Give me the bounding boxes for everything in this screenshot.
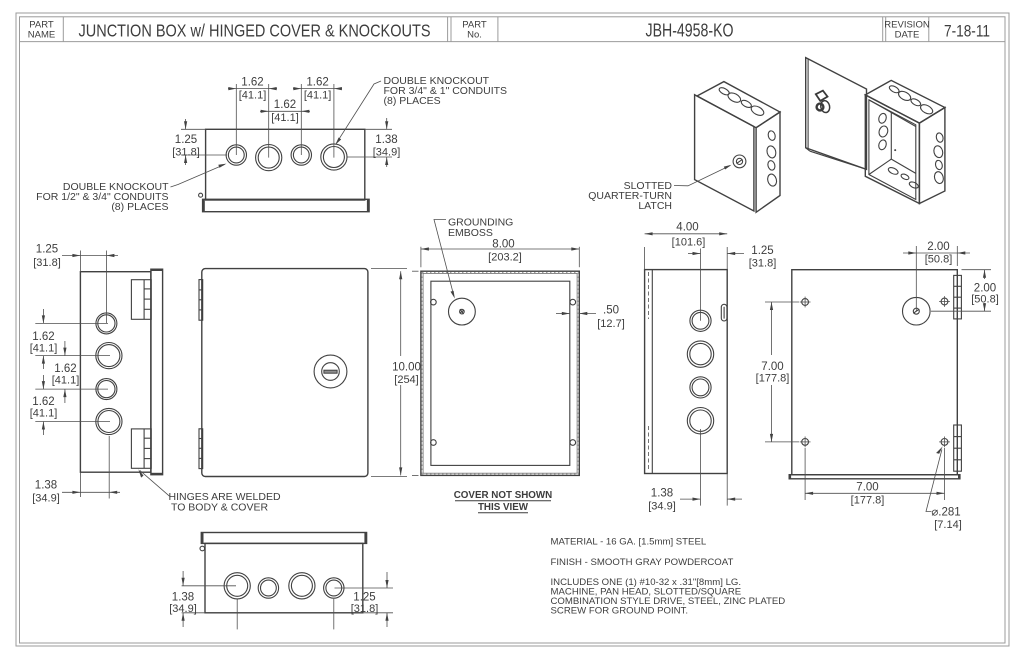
svg-text:1.38: 1.38 — [172, 591, 194, 603]
svg-text:No.: No. — [467, 29, 482, 40]
svg-text:7.00: 7.00 — [761, 361, 783, 373]
svg-text:[177.8]: [177.8] — [756, 372, 790, 384]
svg-text:FINISH - SMOOTH GRAY POWDERCOA: FINISH - SMOOTH GRAY POWDERCOAT — [551, 557, 734, 568]
svg-text:[50.8]: [50.8] — [925, 254, 953, 266]
svg-text:[31.8]: [31.8] — [749, 257, 777, 269]
svg-text:1.25: 1.25 — [36, 243, 58, 255]
svg-text:COVER NOT SHOWN: COVER NOT SHOWN — [454, 490, 553, 501]
svg-text:[34.9]: [34.9] — [373, 147, 401, 159]
svg-text:(8) PLACES: (8) PLACES — [111, 201, 168, 213]
svg-text:1.25: 1.25 — [751, 245, 773, 257]
svg-text:1.38: 1.38 — [35, 480, 57, 492]
svg-text:TO BODY & COVER: TO BODY & COVER — [171, 502, 268, 514]
svg-text:2.00: 2.00 — [927, 241, 949, 253]
svg-text:.50: .50 — [603, 305, 619, 317]
svg-text:JBH-4958-KO: JBH-4958-KO — [646, 21, 734, 41]
svg-text:[177.8]: [177.8] — [851, 495, 885, 507]
svg-text:[31.8]: [31.8] — [172, 146, 200, 158]
svg-text:MATERIAL - 16 GA. [1.5mm] STEE: MATERIAL - 16 GA. [1.5mm] STEEL — [551, 537, 707, 548]
svg-text:[34.9]: [34.9] — [169, 603, 197, 615]
svg-text:1.62: 1.62 — [306, 76, 328, 88]
svg-text:1.62: 1.62 — [241, 76, 263, 88]
svg-text:[50.8]: [50.8] — [971, 293, 999, 305]
svg-text:[254]: [254] — [394, 374, 418, 386]
svg-text:[41.1]: [41.1] — [271, 112, 299, 124]
svg-text:10.00: 10.00 — [392, 361, 421, 373]
svg-text:[101.6]: [101.6] — [672, 236, 706, 248]
svg-text:[203.2]: [203.2] — [488, 252, 522, 264]
svg-text:NAME: NAME — [28, 29, 55, 40]
svg-text:[34.9]: [34.9] — [32, 493, 60, 505]
svg-text:LATCH: LATCH — [638, 200, 672, 212]
svg-text:1.62: 1.62 — [54, 363, 76, 375]
svg-text:[31.8]: [31.8] — [33, 257, 61, 269]
svg-text:7-18-11: 7-18-11 — [944, 21, 990, 40]
svg-text:[7.14]: [7.14] — [934, 519, 962, 531]
svg-text:8.00: 8.00 — [492, 238, 514, 250]
svg-text:[41.1]: [41.1] — [52, 375, 80, 387]
svg-text:DATE: DATE — [895, 29, 920, 40]
svg-text:4.00: 4.00 — [676, 222, 698, 234]
svg-text:1.62: 1.62 — [32, 396, 54, 408]
svg-text:THIS VIEW: THIS VIEW — [478, 502, 529, 513]
svg-text:[41.1]: [41.1] — [304, 90, 332, 102]
svg-text:1.25: 1.25 — [175, 134, 197, 146]
svg-text:[41.1]: [41.1] — [30, 408, 58, 420]
svg-text:1.38: 1.38 — [651, 488, 673, 500]
svg-text:[31.8]: [31.8] — [351, 603, 379, 615]
svg-text:⌀.281: ⌀.281 — [931, 507, 960, 519]
svg-text:7.00: 7.00 — [856, 482, 878, 494]
svg-text:1.25: 1.25 — [353, 591, 375, 603]
svg-text:[41.1]: [41.1] — [239, 90, 267, 102]
svg-text:1.38: 1.38 — [375, 134, 397, 146]
svg-text:1.62: 1.62 — [274, 99, 296, 111]
svg-text:[12.7]: [12.7] — [597, 318, 625, 330]
svg-text:(8) PLACES: (8) PLACES — [384, 95, 441, 107]
svg-text:SCREW FOR GROUND POINT.: SCREW FOR GROUND POINT. — [551, 606, 689, 617]
svg-text:[41.1]: [41.1] — [30, 343, 58, 355]
svg-text:[34.9]: [34.9] — [648, 501, 676, 513]
svg-text:JUNCTION BOX w/ HINGED COVER &: JUNCTION BOX w/ HINGED COVER & KNOCKOUTS — [79, 21, 431, 41]
svg-text:EMBOSS: EMBOSS — [448, 227, 493, 239]
svg-text:1.62: 1.62 — [32, 331, 54, 343]
